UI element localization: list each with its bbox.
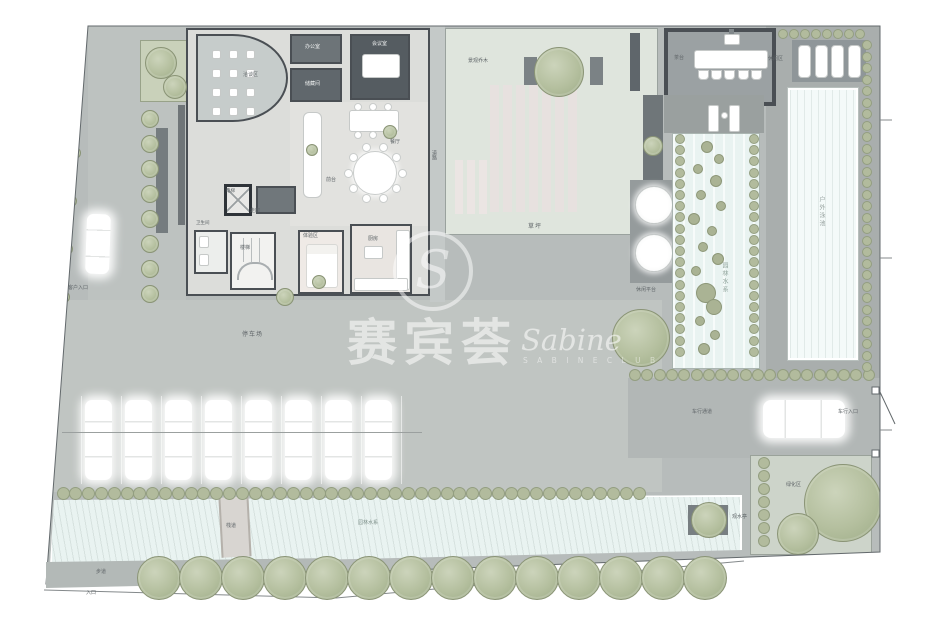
street-tree <box>141 160 159 178</box>
round-table <box>353 151 397 195</box>
hedge-shrub <box>758 483 770 495</box>
hedge-shrub <box>428 487 441 500</box>
hedge-shrub <box>95 487 108 500</box>
hedge-shrub <box>620 487 633 500</box>
boulevard-tree <box>683 556 727 600</box>
hedge-shrub <box>749 134 759 144</box>
parking-car <box>285 400 312 480</box>
street-tree <box>141 210 159 228</box>
negotiation-seat <box>229 50 238 59</box>
garden-stone <box>698 242 708 252</box>
entrance-car <box>85 214 111 275</box>
parking-car <box>365 400 392 480</box>
garden-stone <box>701 141 713 153</box>
hedge-shrub <box>862 247 872 257</box>
negotiation-seat <box>229 107 238 116</box>
hedge-shrub <box>855 29 865 39</box>
hedge-shrub <box>569 487 582 500</box>
hedge-shrub <box>675 168 685 178</box>
planter-tree <box>163 75 187 99</box>
negotiation-seat <box>246 50 255 59</box>
meeting-table <box>362 54 400 78</box>
hedge-shrub <box>517 487 530 500</box>
hedge-shrub <box>453 487 466 500</box>
lawn-paving-stripes-2 <box>455 160 489 214</box>
garden-stone <box>698 343 710 355</box>
pavilion-chair <box>698 70 709 80</box>
hedge-shrub <box>758 496 770 508</box>
street-tree <box>141 135 159 153</box>
hedge-shrub <box>749 302 759 312</box>
boundary-shrub <box>69 147 81 159</box>
pavilion-chair <box>738 70 749 80</box>
banquet-chair <box>379 143 388 152</box>
hedge-shrub <box>133 487 146 500</box>
hedge-shrub <box>633 487 646 500</box>
boundary-shrub <box>61 243 73 255</box>
hedge-shrub <box>749 280 759 290</box>
hedge-shrub <box>862 144 872 154</box>
garden-stone <box>716 201 726 211</box>
dining-chair <box>384 103 392 111</box>
entry-plant <box>276 288 294 306</box>
entrance-label: 入口 <box>86 591 96 596</box>
stall-line <box>121 396 122 484</box>
parking-car <box>85 400 112 480</box>
sun-lounger <box>798 45 811 78</box>
negotiation-seat <box>229 88 238 97</box>
site-plan: 草坪 景观乔木 道路 茶台 休闲区 户外泳池 园林水系 休闲平台 停车场 客户入… <box>0 0 933 627</box>
entry-plant <box>312 275 326 289</box>
negotiation-seat <box>229 69 238 78</box>
service-room <box>256 186 296 214</box>
deck-tree <box>643 136 663 156</box>
hedge-shrub <box>862 270 872 280</box>
hedge-shrub <box>749 336 759 346</box>
hedge-shrub <box>862 40 872 50</box>
pavilion-chair <box>751 70 762 80</box>
garden-stone <box>710 175 722 187</box>
garden-stone <box>695 316 705 326</box>
hedge-shrub <box>862 167 872 177</box>
hedge-shrub <box>57 487 70 500</box>
hedge-shrub <box>862 190 872 200</box>
hedge-shrub <box>862 259 872 269</box>
hedge-shrub <box>777 369 789 381</box>
umbrella-seat-1 <box>635 186 673 224</box>
hedge-shrub <box>862 305 872 315</box>
hedge-shrub <box>749 168 759 178</box>
garden-stone <box>706 299 722 315</box>
sun-lounger <box>831 45 844 78</box>
negotiation-seat <box>212 50 221 59</box>
hedge-shrub <box>629 369 641 381</box>
hedge-shrub <box>675 179 685 189</box>
banquet-chair <box>349 153 358 162</box>
negotiation-seat <box>246 88 255 97</box>
driveway-car <box>763 400 845 438</box>
hedge-shrub <box>675 280 685 290</box>
garden-stone <box>688 213 700 225</box>
sun-lounger <box>815 45 828 78</box>
hedge-shrub <box>300 487 313 500</box>
negotiation-seat <box>246 107 255 116</box>
hedge-shrub <box>749 224 759 234</box>
hedge-shrub <box>675 302 685 312</box>
dining-chair <box>369 131 377 139</box>
street-tree <box>141 235 159 253</box>
hedge-shrub <box>108 487 121 500</box>
hedge-shrub <box>749 347 759 357</box>
hedge-shrub <box>814 369 826 381</box>
hedge-shrub <box>675 246 685 256</box>
dining-chair <box>354 103 362 111</box>
stall-line <box>401 396 402 484</box>
hedge-shrub <box>811 29 821 39</box>
hedge-shrub <box>675 347 685 357</box>
hedge-shrub <box>862 52 872 62</box>
hedge-shrub <box>862 282 872 292</box>
stair-room <box>230 232 276 290</box>
street-tree <box>141 260 159 278</box>
sun-lounger <box>848 45 861 78</box>
lawn-feature-tree <box>534 47 584 97</box>
hedge-shrub <box>581 487 594 500</box>
garden-stone <box>693 164 703 174</box>
hedge-shrub <box>479 487 492 500</box>
hedge-shrub <box>862 362 872 372</box>
storage-room <box>290 68 342 102</box>
hedge-shrub <box>185 487 198 500</box>
hedge-shrub <box>249 487 262 500</box>
hedge-shrub <box>675 190 685 200</box>
dining-chair <box>354 131 362 139</box>
hedge-shrub <box>844 29 854 39</box>
hedge-shrub <box>862 236 872 246</box>
hedge-shrub <box>862 121 872 131</box>
hedge-shrub <box>838 369 850 381</box>
hedge-shrub <box>172 487 185 500</box>
negotiation-seat <box>246 69 255 78</box>
hedge-shrub <box>749 291 759 301</box>
stair-tread-2 <box>251 238 252 262</box>
negotiation-seat <box>212 107 221 116</box>
hedge-shrub <box>69 487 82 500</box>
hedge-shrub <box>666 369 678 381</box>
hedge-shrub <box>675 336 685 346</box>
hedge-shrub <box>749 235 759 245</box>
hedge-shrub <box>441 487 454 500</box>
hedge-shrub <box>274 487 287 500</box>
hedge-shrub <box>691 369 703 381</box>
elevator <box>224 184 252 216</box>
stall-line <box>241 396 242 484</box>
hedge-shrub <box>758 470 770 482</box>
pavilion-table <box>694 50 768 69</box>
pavilion-chair <box>724 70 735 80</box>
restroom-fixture-1 <box>199 236 209 248</box>
pavilion-dark-slab <box>630 33 640 91</box>
deck-table-2 <box>729 105 740 132</box>
garden-stone <box>707 226 717 236</box>
garden-stone <box>696 190 706 200</box>
hedge-shrub <box>675 235 685 245</box>
office-room <box>290 34 342 64</box>
umbrella-seat-2 <box>635 234 673 272</box>
hedge-shrub <box>826 369 838 381</box>
hedge-shrub <box>287 487 300 500</box>
stall-line <box>81 396 82 484</box>
site-ground <box>0 0 933 627</box>
hedge-shrub <box>758 457 770 469</box>
deck-dot <box>721 112 728 119</box>
banquet-chair <box>362 143 371 152</box>
hedge-shrub <box>389 487 402 500</box>
hedge-shrub <box>749 179 759 189</box>
hedge-shrub <box>862 75 872 85</box>
hedge-shrub <box>862 339 872 349</box>
hedge-shrub <box>146 487 159 500</box>
hedge-shrub <box>351 487 364 500</box>
hedge-shrub <box>402 487 415 500</box>
hedge-shrub <box>862 132 872 142</box>
stall-line <box>361 396 362 484</box>
stall-line <box>321 396 322 484</box>
boulevard-tree <box>599 556 643 600</box>
street-tree <box>141 285 159 303</box>
hedge-shrub <box>862 155 872 165</box>
hedge-shrub <box>749 246 759 256</box>
hedge-shrub <box>556 487 569 500</box>
stall-line <box>201 396 202 484</box>
garden-stone <box>710 330 720 340</box>
parking-car <box>245 400 272 480</box>
restroom-fixture-2 <box>199 254 209 266</box>
hedge-shrub <box>862 293 872 303</box>
garden-tree <box>777 513 819 555</box>
stair-tread-1 <box>243 238 244 262</box>
hedge-shrub <box>415 487 428 500</box>
banquet-chair <box>344 169 353 178</box>
hedge-shrub <box>505 487 518 500</box>
hedge-shrub <box>862 201 872 211</box>
boundary-shrub <box>65 195 77 207</box>
hedge-shrub <box>543 487 556 500</box>
hedge-shrub <box>862 224 872 234</box>
lawn-paving-stripes <box>490 85 578 212</box>
hedge-shrub <box>749 190 759 200</box>
negotiation-seat <box>212 88 221 97</box>
hedge-shrub <box>530 487 543 500</box>
hedge-shrub <box>758 509 770 521</box>
hedge-shrub <box>159 487 172 500</box>
stall-cross-line <box>62 432 422 433</box>
hedge-shrub <box>862 328 872 338</box>
hedge-shrub <box>862 109 872 119</box>
negotiation-seat <box>212 69 221 78</box>
dining-chair <box>369 103 377 111</box>
hedge-shrub <box>862 213 872 223</box>
hedge-shrub <box>715 369 727 381</box>
kitchen-island <box>364 246 383 259</box>
hedge-shrub <box>789 369 801 381</box>
hedge-shrub <box>703 369 715 381</box>
banquet-chair <box>379 194 388 203</box>
banquet-chair <box>398 169 407 178</box>
hedge-shrub <box>862 316 872 326</box>
hedge-shrub <box>752 369 764 381</box>
hedge-shrub <box>82 487 95 500</box>
hedge-shrub <box>338 487 351 500</box>
hedge-shrub <box>325 487 338 500</box>
outdoor-pool <box>788 88 858 360</box>
hedge-shrub <box>313 487 326 500</box>
garden-stone <box>691 266 701 276</box>
stream-bridge <box>218 496 251 557</box>
hedge-shrub <box>758 535 770 547</box>
banquet-chair <box>349 184 358 193</box>
pavilion-chair <box>711 70 722 80</box>
hedge-shrub <box>833 29 843 39</box>
parking-car <box>325 400 352 480</box>
garden-stone <box>712 253 724 265</box>
hedge-shrub <box>800 29 810 39</box>
hedge-shrub <box>675 291 685 301</box>
indoor-plant <box>383 125 397 139</box>
kitchen-counter-bottom <box>354 278 408 291</box>
hedge-shrub <box>492 487 505 500</box>
hedge-shrub <box>377 487 390 500</box>
street-tree <box>141 110 159 128</box>
hedge-shrub <box>862 351 872 361</box>
parking-car <box>125 400 152 480</box>
parking-car <box>205 400 232 480</box>
stall-line <box>281 396 282 484</box>
hedge-shrub <box>862 63 872 73</box>
boundary-shrub <box>58 291 70 303</box>
stall-line <box>161 396 162 484</box>
banquet-chair <box>392 153 401 162</box>
hedge-shrub <box>607 487 620 500</box>
garden-stone <box>714 154 724 164</box>
stair-tread-3 <box>259 238 260 262</box>
lawn-planter-right <box>590 57 603 85</box>
deck-table-1 <box>708 105 719 132</box>
hedge-shrub <box>822 29 832 39</box>
hedge-shrub <box>236 487 249 500</box>
hedge-shrub <box>789 29 799 39</box>
hedge-shrub <box>675 224 685 234</box>
road-strip <box>430 26 445 302</box>
hedge-shrub <box>675 134 685 144</box>
pavilion-grill-knob <box>729 29 734 34</box>
hedge-shrub <box>862 86 872 96</box>
building-west-wall <box>178 105 185 225</box>
hedge-shrub <box>364 487 377 500</box>
hedge-shrub <box>740 369 752 381</box>
hedge-shrub <box>862 98 872 108</box>
boulevard-tree <box>641 556 685 600</box>
plaza-tree <box>612 309 670 367</box>
hedge-shrub <box>758 522 770 534</box>
hedge-shrub <box>223 487 236 500</box>
hedge-shrub <box>778 29 788 39</box>
hedge-shrub <box>210 487 223 500</box>
hedge-shrub <box>594 487 607 500</box>
hedge-shrub <box>197 487 210 500</box>
hedge-shrub <box>466 487 479 500</box>
hedge-shrub <box>862 178 872 188</box>
hedge-shrub <box>121 487 134 500</box>
pavilion-grill <box>724 34 740 45</box>
desk-plant <box>306 144 318 156</box>
hedge-shrub <box>261 487 274 500</box>
island-tree <box>691 502 727 538</box>
parking-car <box>165 400 192 480</box>
street-tree <box>141 185 159 203</box>
hedge-shrub <box>654 369 666 381</box>
